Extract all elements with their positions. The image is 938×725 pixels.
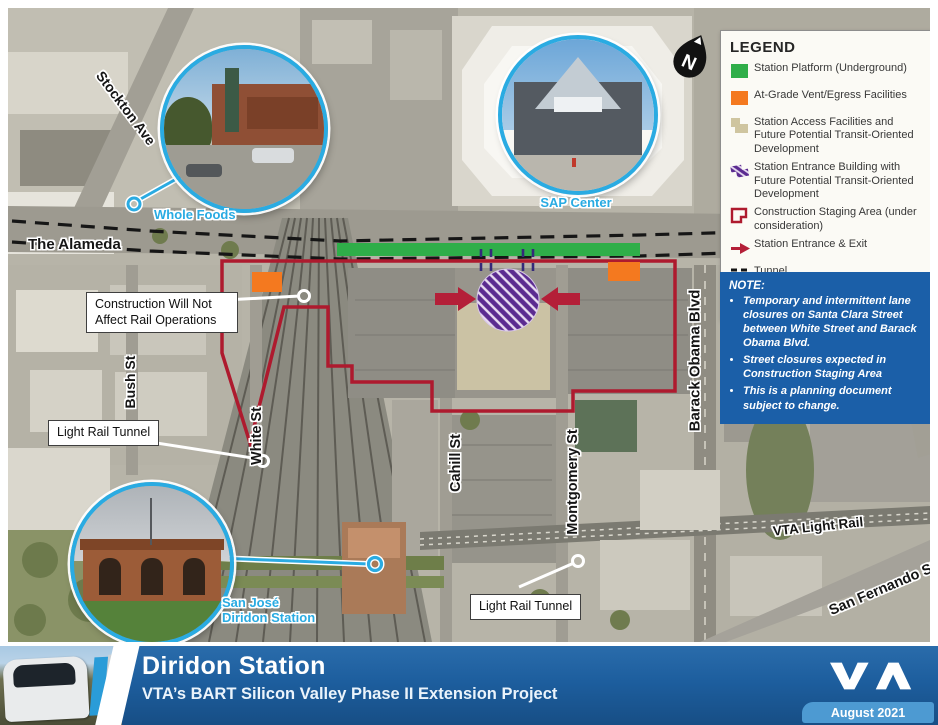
legend-item: Station Entrance & Exit xyxy=(730,238,928,260)
staging-area-swatch xyxy=(730,206,754,229)
sap-center-inset-photo xyxy=(498,35,658,195)
street-label-cahill-st: Cahill St xyxy=(448,423,464,503)
note-bullet: Street closures expected in Construction… xyxy=(743,353,929,381)
vta-logo xyxy=(830,659,912,693)
diridon-label-line2: Diridon Station xyxy=(222,611,315,626)
legend-item: Station Entrance Building with Future Po… xyxy=(730,161,928,201)
diridon-station-inset-photo xyxy=(70,482,234,642)
station-entrance-building xyxy=(477,269,539,331)
legend-title: LEGEND xyxy=(730,39,928,56)
train-front xyxy=(2,656,89,722)
street-label-the-alameda: The Alameda xyxy=(28,236,121,253)
callout-light-rail-tunnel-2: Light Rail Tunnel xyxy=(470,594,581,620)
station-platform-swatch xyxy=(730,62,754,84)
diridon-label-line1: San José xyxy=(222,596,315,611)
street-label-barack-obama-blvd: Barack Obama Blvd xyxy=(687,281,704,441)
footer-title: Diridon Station xyxy=(142,652,557,681)
legend-item: Construction Staging Area (under conside… xyxy=(730,206,928,233)
legend-label: Station Entrance Building with Future Po… xyxy=(754,161,928,201)
note-bullet: Temporary and intermittent lane closures… xyxy=(743,294,929,350)
street-label-white-st: White St xyxy=(249,396,265,476)
callout-text: Light Rail Tunnel xyxy=(479,599,572,613)
aerial-map: Construction Will Not Affect Rail Operat… xyxy=(8,8,930,642)
vent-egress-west xyxy=(252,272,282,292)
entrance-building-swatch xyxy=(730,161,754,184)
sap-center-label: SAP Center xyxy=(538,196,614,211)
legend-label: Station Access Facilities and Future Pot… xyxy=(754,116,928,156)
diridon-station-label: San José Diridon Station xyxy=(222,596,315,626)
note-panel: NOTE: Temporary and intermittent lane cl… xyxy=(720,272,930,424)
legend-label: Construction Staging Area (under conside… xyxy=(754,206,928,233)
legend-item: Station Platform (Underground) xyxy=(730,62,928,84)
note-title: NOTE: xyxy=(729,280,929,292)
entrance-exit-arrow-icon xyxy=(730,238,754,260)
footer-banner: Diridon Station VTA’s BART Silicon Valle… xyxy=(0,646,938,725)
legend-label: At-Grade Vent/Egress Facilities xyxy=(754,89,907,102)
date-badge: August 2021 xyxy=(802,702,934,723)
legend-label: Station Platform (Underground) xyxy=(754,62,907,75)
callout-light-rail-tunnel-1: Light Rail Tunnel xyxy=(48,420,159,446)
callout-text: Light Rail Tunnel xyxy=(57,425,150,439)
street-label-bush-st: Bush St xyxy=(122,342,138,422)
footer-subtitle: VTA’s BART Silicon Valley Phase II Exten… xyxy=(142,685,557,704)
station-access-swatch xyxy=(730,116,754,139)
callout-construction-note: Construction Will Not Affect Rail Operat… xyxy=(86,292,238,333)
legend-item: Station Access Facilities and Future Pot… xyxy=(730,116,928,156)
vent-egress-swatch xyxy=(730,89,754,111)
vent-egress-east xyxy=(608,262,640,281)
street-label-montgomery-st: Montgomery St xyxy=(565,422,581,542)
whole-foods-label: Whole Foods xyxy=(154,208,236,223)
legend-label: Station Entrance & Exit xyxy=(754,238,867,251)
footer-titles: Diridon Station VTA’s BART Silicon Valle… xyxy=(142,652,557,704)
whole-foods-inset-photo xyxy=(160,45,328,213)
callout-text: Construction Will Not Affect Rail Operat… xyxy=(95,297,216,327)
station-platform-bar xyxy=(337,243,640,256)
legend-item: At-Grade Vent/Egress Facilities xyxy=(730,89,928,111)
diridon-station-planning-map: Construction Will Not Affect Rail Operat… xyxy=(0,0,938,725)
note-list: Temporary and intermittent lane closures… xyxy=(729,294,929,413)
north-arrow: N xyxy=(668,32,714,80)
note-bullet: This is a planning document subject to c… xyxy=(743,384,929,412)
